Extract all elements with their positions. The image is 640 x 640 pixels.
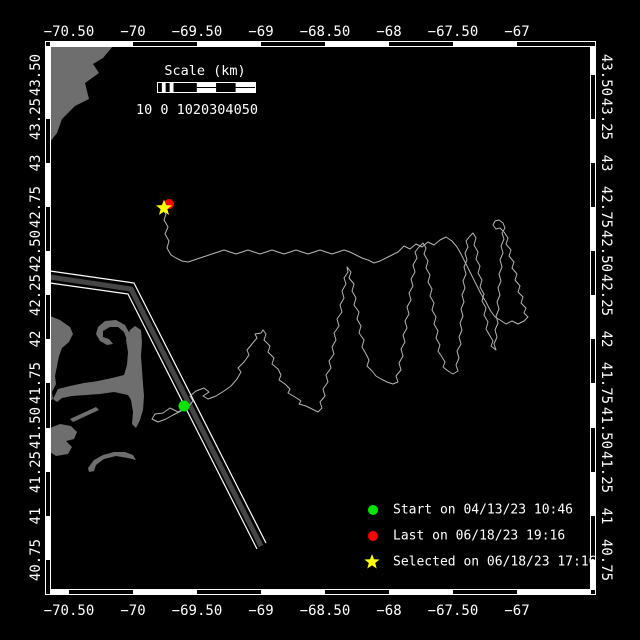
- lon-tick-label-bottom: −68: [376, 603, 401, 619]
- scalebar-title: Scale (km): [164, 63, 245, 79]
- lon-tick-label-top: −70.50: [44, 24, 95, 40]
- scalebar-segment: [216, 83, 235, 92]
- lat-tick-label-left: 41.75: [28, 362, 44, 404]
- lat-tick-label-left: 41: [28, 508, 44, 525]
- legend-start-marker: [368, 505, 378, 515]
- lat-tick-label-left: 42.75: [28, 186, 44, 228]
- lat-tick-label-left: 42.50: [28, 230, 44, 272]
- lat-tick-label-left: 41.25: [28, 451, 44, 493]
- scalebar-hatch-block: [162, 83, 166, 92]
- lat-tick-label-right: 43.50: [598, 54, 614, 96]
- lat-tick-label-right: 42.75: [598, 186, 614, 228]
- scalebar-hatch-block: [174, 83, 178, 92]
- scalebar-labels: 10 0 1020304050: [136, 102, 258, 118]
- lat-tick-label-left: 40.75: [28, 539, 44, 581]
- lat-tick-label-left: 43: [28, 155, 44, 172]
- lon-tick-label-bottom: −69.50: [172, 603, 223, 619]
- scalebar-segment: [177, 83, 196, 92]
- scalebar-hatch-block: [170, 83, 174, 92]
- scalebar-hatch-block: [166, 83, 170, 92]
- lon-tick-label-bottom: −68.50: [300, 603, 351, 619]
- lon-tick-label-top: −69.50: [172, 24, 223, 40]
- legend-last-label: Last on 06/18/23 19:16: [393, 529, 565, 544]
- lon-tick-label-top: −67: [504, 24, 529, 40]
- lat-tick-label-right: 41: [598, 508, 614, 525]
- lat-tick-label-right: 41.25: [598, 451, 614, 493]
- lon-tick-label-top: −68.50: [300, 24, 351, 40]
- lon-tick-label-bottom: −70: [120, 603, 145, 619]
- lat-tick-label-left: 41.50: [28, 407, 44, 449]
- lat-tick-label-right: 42: [598, 331, 614, 348]
- lon-tick-label-top: −68: [376, 24, 401, 40]
- lon-tick-label-top: −70: [120, 24, 145, 40]
- lat-tick-label-right: 40.75: [598, 539, 614, 581]
- lat-tick-label-left: 43.50: [28, 54, 44, 96]
- lon-tick-label-bottom: −67.50: [428, 603, 479, 619]
- lat-tick-label-right: 41.75: [598, 362, 614, 404]
- lat-tick-label-right: 43.25: [598, 98, 614, 140]
- lat-tick-label-right: 43: [598, 155, 614, 172]
- lon-tick-label-top: −69: [248, 24, 273, 40]
- scalebar-bar: [158, 83, 256, 93]
- lat-tick-label-right: 42.50: [598, 230, 614, 272]
- map-background: [0, 0, 640, 640]
- lon-tick-label-bottom: −69: [248, 603, 273, 619]
- legend-selected-label: Selected on 06/18/23 17:16: [393, 555, 597, 570]
- lon-tick-label-top: −67.50: [428, 24, 479, 40]
- lon-tick-label-bottom: −67: [504, 603, 529, 619]
- lat-tick-label-left: 43.25: [28, 98, 44, 140]
- scalebar-hatch-block: [158, 83, 162, 92]
- lat-tick-label-right: 41.50: [598, 407, 614, 449]
- lon-tick-label-bottom: −70.50: [44, 603, 95, 619]
- start-position-marker[interactable]: [179, 401, 190, 412]
- lat-tick-label-right: 42.25: [598, 274, 614, 316]
- lat-tick-label-left: 42: [28, 331, 44, 348]
- glider-track-map[interactable]: −70.50−70.50−70−70−69.50−69.50−69−69−68.…: [0, 0, 640, 640]
- lat-tick-label-left: 42.25: [28, 274, 44, 316]
- legend: Start on 04/13/23 10:46 Last on 06/18/23…: [364, 503, 596, 570]
- legend-start-label: Start on 04/13/23 10:46: [393, 503, 573, 518]
- legend-last-marker: [368, 531, 378, 541]
